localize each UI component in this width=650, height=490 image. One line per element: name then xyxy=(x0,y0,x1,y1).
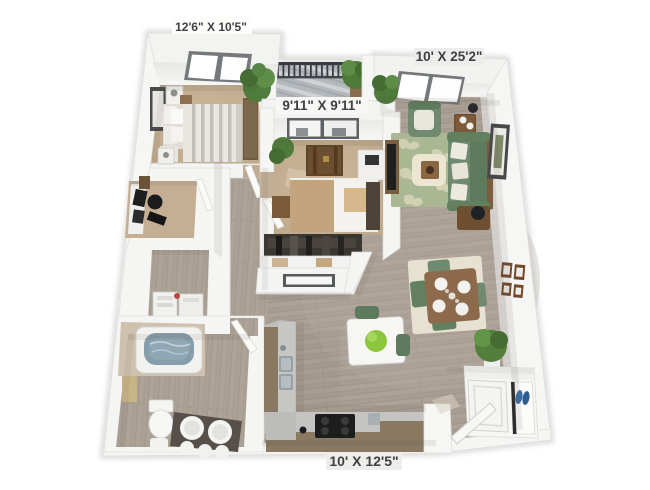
svg-text:10' X 12'5": 10' X 12'5" xyxy=(329,453,398,469)
svg-text:12'6" X 10'5": 12'6" X 10'5" xyxy=(175,20,247,34)
svg-text:10' X 25'2": 10' X 25'2" xyxy=(416,49,483,64)
svg-text:9'11" X 9'11": 9'11" X 9'11" xyxy=(282,98,361,113)
